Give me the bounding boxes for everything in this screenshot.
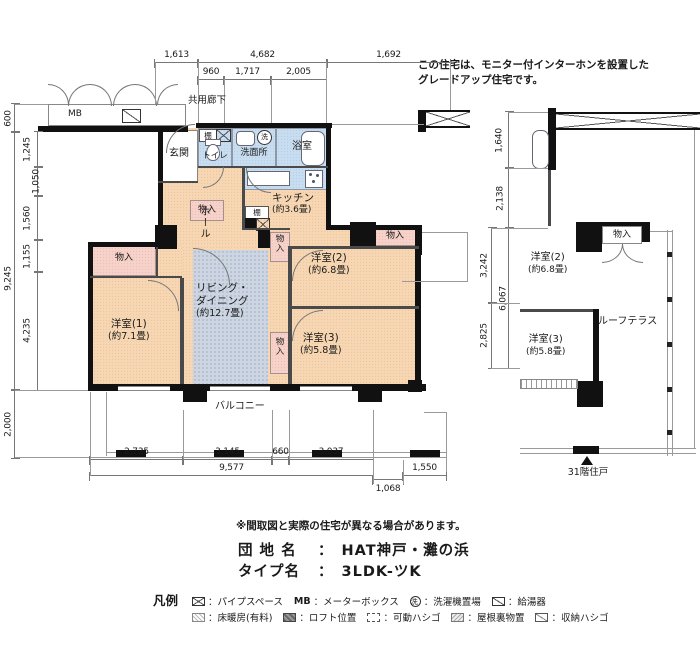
movable-ladder-legend-icon [367,613,380,622]
living-label-2: ダイニング [196,295,249,308]
arch-arc-left [48,84,69,105]
dim-bottom-1550: 1,550 [403,463,446,473]
legend-label: ：ロフト位置 [299,610,356,624]
rp-closet-door-arc-right [622,244,643,263]
rp-railing-dot-3 [667,342,672,347]
bedroom-2-label: 洋室(2) [308,252,350,265]
dim-line [183,459,272,460]
dim-ext [326,62,327,123]
dim-top-3: 1,692 [327,50,450,60]
dim-line [14,104,15,132]
rp-bedroom-2-label: 洋室(2) [528,252,567,265]
dim-ext [450,62,451,110]
legend-item-movable-ladder: ：可動ハシゴ [367,610,440,624]
dim-line [198,62,327,63]
dim-line [37,240,38,272]
wall-top-service [196,123,332,128]
rp-wall-bed2-bed3 [520,309,598,312]
grade-up-note: この住宅は、モニター付インターホンを設置した グレードアップ住宅です。 [418,58,649,88]
partition-bedroom-2-top [288,246,419,249]
legend-item-storage-ladder: ：収納ハシゴ [535,610,608,624]
dim-left-1155: 1,155 [22,232,33,282]
bedroom-2-size: (約6.8畳) [308,265,350,277]
legend-item-loft: ：ロフト位置 [283,610,356,624]
dim-line [373,479,403,480]
dim-top2-1: 960 [198,67,224,77]
legend-label: ：メーターボックス [314,594,399,608]
type-name-label: タイプ名 [238,560,310,581]
unit-position-triangle [581,456,593,465]
partition-closet-bed1 [90,276,182,278]
washer-char: 洗 [261,133,268,141]
legend-item-pipe-space: ：パイプスペース [192,594,283,608]
porch-line-top [422,232,467,233]
estate-name-value: HAT神戸・灘の浜 [342,539,470,560]
legend-label: ：可動ハシゴ [383,610,440,624]
wall-left-lower [88,242,93,391]
dim-line [14,390,15,458]
closet-bed3-label: 物入 [273,337,285,356]
storage-ladder-legend-icon [535,613,548,622]
bedroom-3-label-block: 洋室(3) (約5.8畳) [300,332,342,357]
dim-line [224,79,271,80]
type-name-row: タイプ名 ： 3LDK-ツK [238,560,422,581]
dim-ext [373,410,374,484]
rp-edge-line [694,130,695,448]
bathroom-label: 浴室 [276,141,328,152]
dim-bottom-1068: 1,068 [373,484,403,494]
dim-right-1640: 1,640 [494,116,505,166]
type-colon: ： [318,560,334,581]
dim-ext [183,410,184,459]
dim-line [508,112,509,168]
bedroom-1-size: (約7.1畳) [108,331,150,343]
dim-ext [198,62,199,123]
wall-block-b [350,222,376,248]
balcony-pier-1 [183,384,207,402]
legend-item-water-heater: ：給湯器 [492,594,546,608]
legend-item-attic-storage: ：屋根裏物置 [451,610,524,624]
kitchen-label-block: キッチン (約3.6畳) [272,192,314,216]
legend-title: 凡例 [153,593,178,609]
legend-label: ：床暖房(有料) [208,610,272,624]
dim-top2-2: 1,717 [224,67,271,77]
neighbor-wall-line [332,124,424,125]
legend-label: ：屋根裏物置 [467,610,524,624]
dim-line [90,459,183,460]
living-label-1: リビング・ [196,282,249,295]
legend-label: ：パイプスペース [208,594,283,608]
bedroom-3-label: 洋室(3) [300,332,342,345]
hatched-beam-main [426,110,470,128]
dim-line [272,459,289,460]
closet-bed2-label: 物入 [374,230,416,242]
dim-ext [272,410,273,459]
dim-right-2825: 2,825 [479,311,490,361]
legend-item-laundry: 洗：洗濯機置場 [410,594,481,608]
dim-ext [15,104,48,105]
roof-terrace-label: ルーフテラス [598,316,657,329]
dim-line [198,79,224,80]
dim-ext [271,79,272,123]
arch-arc-1 [68,84,112,106]
wall-corner-br [408,380,422,392]
dim-ext [15,457,106,458]
dim-bottom-9577: 9,577 [90,463,373,473]
partition-kitchen-bottom [243,228,290,230]
rp-wall-left [548,170,551,226]
laundry-legend-icon: 洗 [410,596,421,607]
rp-railing-dot-5 [667,430,672,435]
corridor-label: 共用廊下 [188,95,226,107]
dim-ext [289,410,290,459]
dim-ext [508,168,548,169]
living-size-label: (約12.7畳) [196,308,249,320]
dim-line [37,272,38,390]
stove-icon [305,170,323,188]
rp-hatched-beam [556,112,700,130]
floorplan-canvas: この住宅は、モニター付インターホンを設置した グレードアップ住宅です。 棚 洗 … [0,0,700,650]
dim-top-1: 1,613 [155,50,198,60]
legend-row-1: ：パイプスペース MB：メーターボックス 洗：洗濯機置場 ：給湯器 [192,594,546,608]
balcony-rail-line-2 [106,457,446,458]
wall-right-lower [415,246,421,391]
rp-bathtub-icon [532,130,549,169]
closet-hall-label: 物入 [190,204,224,216]
rp-railing-dot-1 [667,252,672,257]
dim-line [90,475,373,476]
wall-kitchen-right [326,123,331,230]
balcony-label: バルコニー [215,401,265,414]
rp-bedroom-3-label: 洋室(3) [526,334,565,347]
legend-row-2: ：床暖房(有料) ：ロフト位置 ：可動ハシゴ ：屋根裏物置 ：収納ハシゴ [192,610,608,624]
bedroom-1-label: 洋室(1) [108,318,150,331]
rp-closet-door-arc-left [602,244,623,263]
beam-end-block [418,110,426,132]
dim-line [403,475,446,476]
rp-railing-line-2 [672,230,673,456]
dim-ext [90,392,91,476]
estate-colon: ： [318,539,334,560]
water-heater-icon [122,109,141,123]
wall-under-mb [38,126,188,132]
partition-kitchen-left [242,167,245,230]
laundry-char: 洗 [411,598,418,606]
partition-closet-right [156,247,158,278]
window-bedroom-1 [118,386,170,391]
bedroom-3-size: (約5.8畳) [300,345,342,357]
wall-corner-right [415,225,422,255]
loft-legend-icon [283,613,296,622]
shelf-label-2: 棚 [253,207,261,218]
legend-item-meter-box: MB：メーターボックス [294,594,399,608]
mb-prefix: MB [294,596,311,607]
dim-ext [491,303,520,304]
partition-entrance [158,181,198,183]
living-label-block: リビング・ ダイニング (約12.7畳) [196,282,249,320]
dim-ext [508,112,548,113]
disclaimer-text: ※間取図と実際の住宅が異なる場合があります。 [236,518,466,533]
floor-unit-label: 31階住戸 [558,467,618,479]
bedroom-2-label-block: 洋室(2) (約6.8畳) [308,252,350,277]
dim-bottom-660: 660 [272,447,289,457]
rp-bottom-line-1 [520,448,696,449]
rp-window-band [520,379,578,389]
balcony-step-line-h [424,412,446,413]
dim-bottom-2735: 2,735 [90,447,183,457]
dim-right-3242: 3,242 [479,241,490,291]
bedroom-1-label-block: 洋室(1) (約7.1畳) [108,318,150,343]
dim-left-9245: 9,245 [3,254,14,304]
toilet-label: トイレ [198,151,232,162]
legend-label: ：収納ハシゴ [551,610,608,624]
legend-item-floor-heating: ：床暖房(有料) [192,610,272,624]
window-bedroom-3 [300,386,352,391]
rp-bedroom-2-label-block: 洋室(2) (約6.8畳) [528,252,567,276]
dim-line [271,79,326,80]
washbasin-icon [236,131,255,146]
dim-line [14,132,15,390]
rp-railing-dot-4 [667,387,672,392]
dim-left-4235: 4,235 [22,306,33,356]
dim-left-600: 600 [3,94,14,144]
rp-bottom-line-2 [520,453,696,454]
dim-right-6067: 6,067 [498,274,509,324]
note-line-1: この住宅は、モニター付インターホンを設置した [418,58,649,73]
window-living [210,386,270,391]
note-line-2: グレードアップ住宅です。 [418,73,649,88]
attic-storage-legend-icon [451,613,464,622]
rp-bottom-tick [573,446,599,454]
dim-line [491,303,492,368]
estate-name-label: 団 地 名 [238,539,310,560]
wall-block-c [155,225,177,249]
porch-line-right [467,232,468,282]
rp-closet-label: 物入 [602,229,642,241]
balcony-step-line-v [446,412,447,478]
dim-line [508,168,509,228]
dim-right-2138: 2,138 [495,174,506,224]
water-heater-legend-icon [492,597,505,606]
dim-bottom-3037: 3,037 [289,447,373,457]
washer-icon: 洗 [257,130,272,145]
partition-bed1-living [180,278,184,384]
dim-line [155,62,198,63]
arch-arc-2 [113,84,157,106]
dim-ext [155,62,156,104]
entrance-label: 玄関 [160,148,198,160]
stove-burners-icon [309,173,312,176]
porch-line-bottom [402,281,468,282]
rp-corner-block-2 [577,381,603,407]
meter-box-label: MB [60,108,90,121]
legend-label: ：洗濯機置場 [424,594,481,608]
rp-railing-dot-2 [667,297,672,302]
washroom-label: 洗面所 [232,148,276,159]
dim-ext [491,368,520,369]
rp-closet-right-block [642,222,650,242]
balcony-pier-2 [358,384,382,402]
balcony-rail-tick-4 [410,450,440,457]
estate-name-row: 団 地 名 ： HAT神戸・灘の浜 [238,539,470,560]
wall-step [88,242,162,247]
rp-wall-top-left [548,108,556,170]
dim-top-2: 4,682 [198,50,327,60]
type-name-value: 3LDK-ツK [342,560,422,581]
rp-bedroom-2-size: (約6.8畳) [528,265,567,276]
rp-bedroom-3-label-block: 洋室(3) (約5.8畳) [526,334,565,358]
dim-left-2000: 2,000 [3,400,14,450]
kitchen-size-label: (約3.6畳) [272,205,314,216]
dim-line [327,62,450,63]
legend-label: ：給湯器 [508,594,546,608]
rp-railing-connector [650,231,672,232]
arch-arc-right [157,84,178,105]
dim-top2-3: 2,005 [271,67,326,77]
floor-heating-legend-icon [192,613,205,622]
dim-ext [491,228,548,229]
kitchen-label: キッチン [272,192,314,205]
wall-block-center [258,230,270,248]
partition-living-beds [288,246,292,384]
rp-corner-block-1 [576,222,602,252]
pipe-space-legend-icon [192,597,205,606]
closet-center-label: 物入 [273,234,285,253]
partition-bed2-bed3 [288,306,419,309]
dim-line [289,459,373,460]
closet-bed1-label: 物入 [92,252,156,264]
dim-ext [15,390,88,391]
dim-bottom-3145: 3,145 [183,447,272,457]
dim-line [491,228,492,303]
rp-bedroom-3-size: (約5.8畳) [526,347,565,358]
dim-ext [403,460,404,484]
